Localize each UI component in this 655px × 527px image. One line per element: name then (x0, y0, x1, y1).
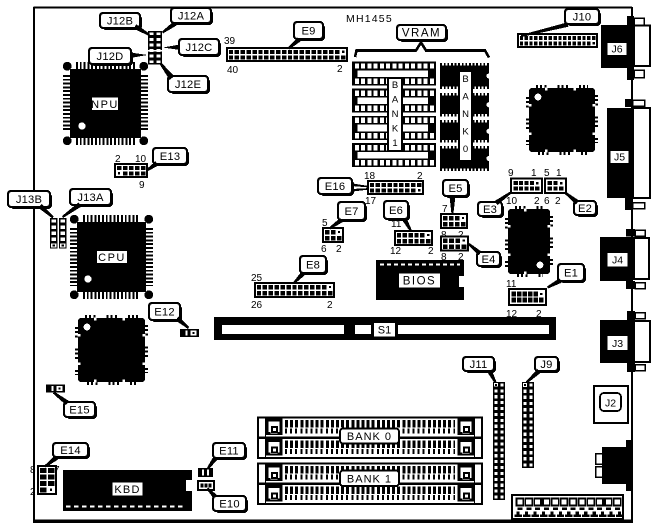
svg-text:E13: E13 (160, 151, 181, 163)
svg-text:E1: E1 (564, 268, 578, 280)
svg-text:2: 2 (337, 64, 343, 75)
svg-text:J11: J11 (470, 359, 488, 371)
svg-text:J13A: J13A (77, 192, 104, 204)
svg-text:2: 2 (336, 244, 342, 255)
svg-text:E3: E3 (483, 204, 497, 216)
svg-text:E7: E7 (344, 206, 358, 218)
svg-text:J10: J10 (573, 12, 592, 24)
svg-text:5: 5 (322, 218, 328, 229)
svg-text:S1: S1 (378, 325, 391, 337)
svg-text:E5: E5 (448, 183, 462, 195)
svg-text:7: 7 (442, 204, 448, 215)
svg-text:KBD: KBD (114, 484, 140, 496)
svg-text:2: 2 (115, 154, 121, 165)
svg-text:E6: E6 (389, 205, 403, 217)
svg-text:12: 12 (390, 246, 402, 257)
svg-text:9: 9 (139, 180, 145, 191)
svg-text:E4: E4 (481, 254, 495, 266)
svg-text:J4: J4 (612, 255, 623, 267)
svg-text:39: 39 (224, 36, 236, 47)
svg-text:J5: J5 (614, 152, 625, 164)
svg-text:E12: E12 (154, 307, 175, 319)
svg-text:J2: J2 (605, 398, 616, 410)
svg-text:18: 18 (364, 171, 376, 182)
svg-text:2: 2 (534, 196, 540, 207)
svg-text:J12D: J12D (97, 51, 124, 63)
svg-text:J12A: J12A (178, 11, 205, 23)
svg-text:8: 8 (30, 465, 36, 476)
svg-text:9: 9 (508, 168, 514, 179)
svg-text:E8: E8 (306, 260, 320, 272)
svg-text:E16: E16 (325, 181, 346, 193)
svg-text:J3: J3 (612, 338, 623, 350)
svg-text:8: 8 (441, 252, 447, 263)
svg-text:2: 2 (327, 300, 333, 311)
svg-text:J6: J6 (611, 44, 622, 56)
svg-text:E11: E11 (219, 446, 239, 458)
svg-text:26: 26 (251, 300, 263, 311)
svg-text:11: 11 (506, 279, 517, 290)
svg-text:2: 2 (30, 487, 36, 498)
svg-text:6: 6 (544, 196, 550, 207)
svg-text:BANK 1: BANK 1 (347, 474, 392, 486)
svg-text:MH1455: MH1455 (346, 13, 393, 25)
svg-text:CPU: CPU (98, 252, 126, 264)
svg-text:BANK 0: BANK 0 (347, 431, 392, 443)
svg-text:J12B: J12B (107, 16, 133, 28)
svg-text:E10: E10 (219, 499, 240, 511)
svg-text:J12C: J12C (186, 42, 213, 54)
svg-text:40: 40 (227, 65, 239, 76)
svg-text:E9: E9 (301, 26, 315, 38)
svg-text:E2: E2 (578, 203, 592, 215)
svg-text:VRAM: VRAM (402, 28, 441, 40)
svg-text:17: 17 (365, 196, 377, 207)
svg-text:J9: J9 (540, 359, 552, 371)
svg-text:J13B: J13B (16, 194, 42, 206)
svg-text:J12E: J12E (175, 79, 201, 91)
svg-text:25: 25 (251, 273, 263, 284)
svg-text:1: 1 (556, 168, 562, 179)
svg-text:BIOS: BIOS (403, 276, 436, 288)
svg-text:10: 10 (506, 196, 518, 207)
svg-text:2: 2 (458, 252, 464, 263)
svg-text:1: 1 (531, 168, 537, 179)
svg-text:2: 2 (417, 171, 423, 182)
svg-text:NPU: NPU (91, 99, 119, 111)
svg-text:6: 6 (321, 244, 327, 255)
svg-text:10: 10 (135, 154, 147, 165)
svg-text:2: 2 (428, 246, 434, 257)
svg-text:2: 2 (555, 196, 561, 207)
svg-text:7: 7 (54, 465, 60, 476)
svg-text:E14: E14 (60, 445, 81, 457)
svg-text:E15: E15 (69, 405, 90, 417)
svg-text:5: 5 (544, 168, 550, 179)
